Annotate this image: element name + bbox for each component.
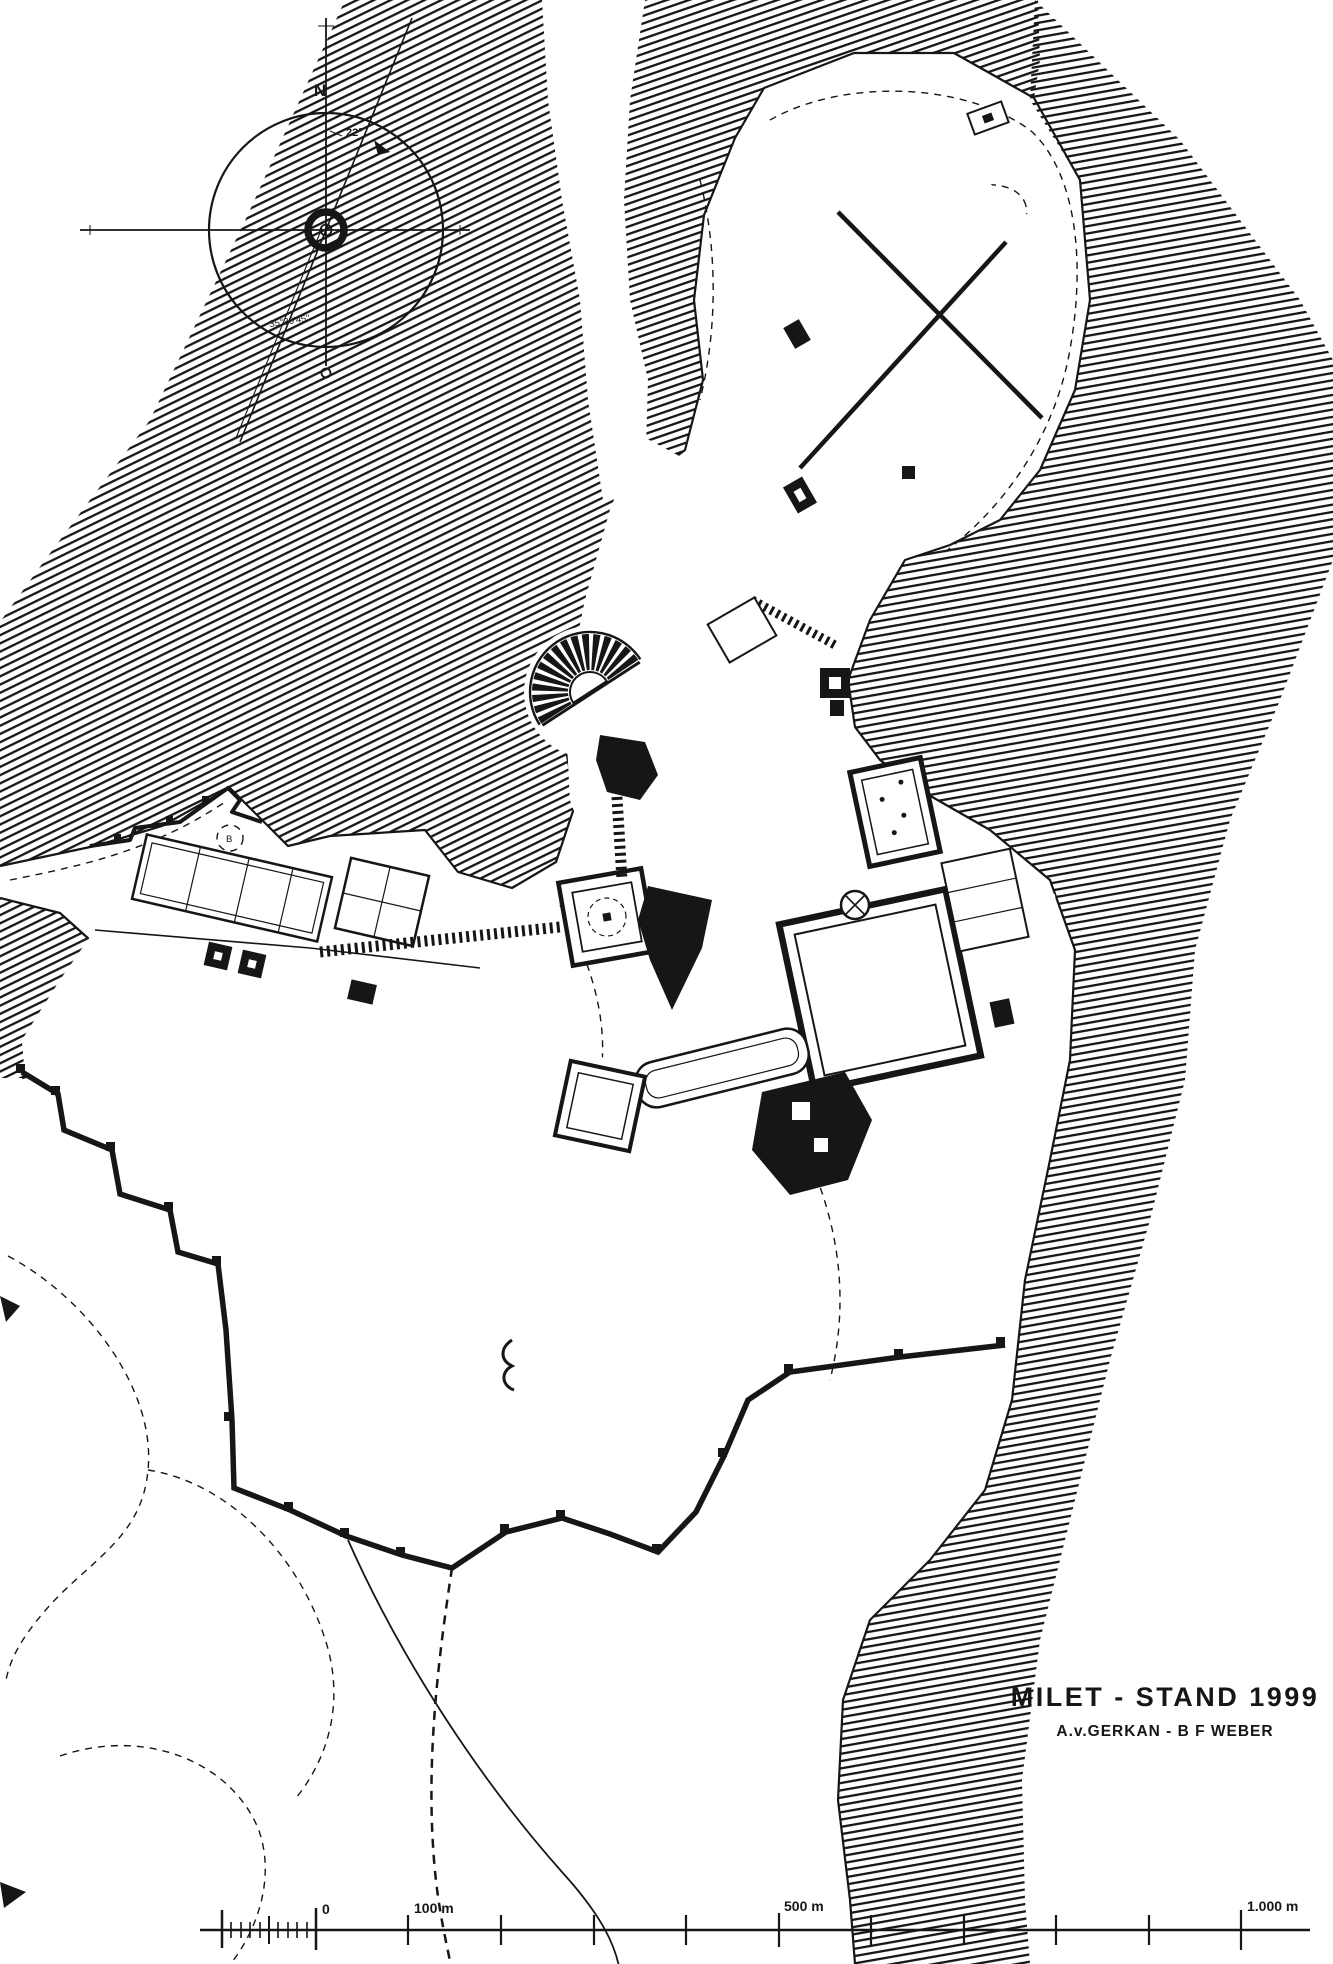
scale-zero-label: 0 <box>322 1901 330 1917</box>
scale-100m-label: 100 m <box>414 1900 454 1916</box>
milet-city-plan-page: B N 22° 35°30'45'' 0 100 m 500 m <box>0 0 1333 1964</box>
map-title: MILET - STAND 1999 <box>1011 1682 1320 1712</box>
compass-north-label: N <box>314 81 326 100</box>
scale-1000m-label: 1.000 m <box>1247 1898 1298 1914</box>
west-agora <box>555 1061 645 1151</box>
scale-500m-label: 500 m <box>784 1898 824 1914</box>
milet-city-plan-map: B N 22° 35°30'45'' 0 100 m 500 m <box>0 0 1333 1964</box>
map-authors: A.v.GERKAN - B F WEBER <box>1056 1723 1273 1740</box>
title-block: MILET - STAND 1999 A.v.GERKAN - B F WEBE… <box>1011 1682 1320 1740</box>
compass-declination-label: 22° <box>346 127 363 139</box>
south-agora <box>779 889 981 1091</box>
point-b-label: B <box>226 834 232 845</box>
rotunda <box>841 891 869 919</box>
